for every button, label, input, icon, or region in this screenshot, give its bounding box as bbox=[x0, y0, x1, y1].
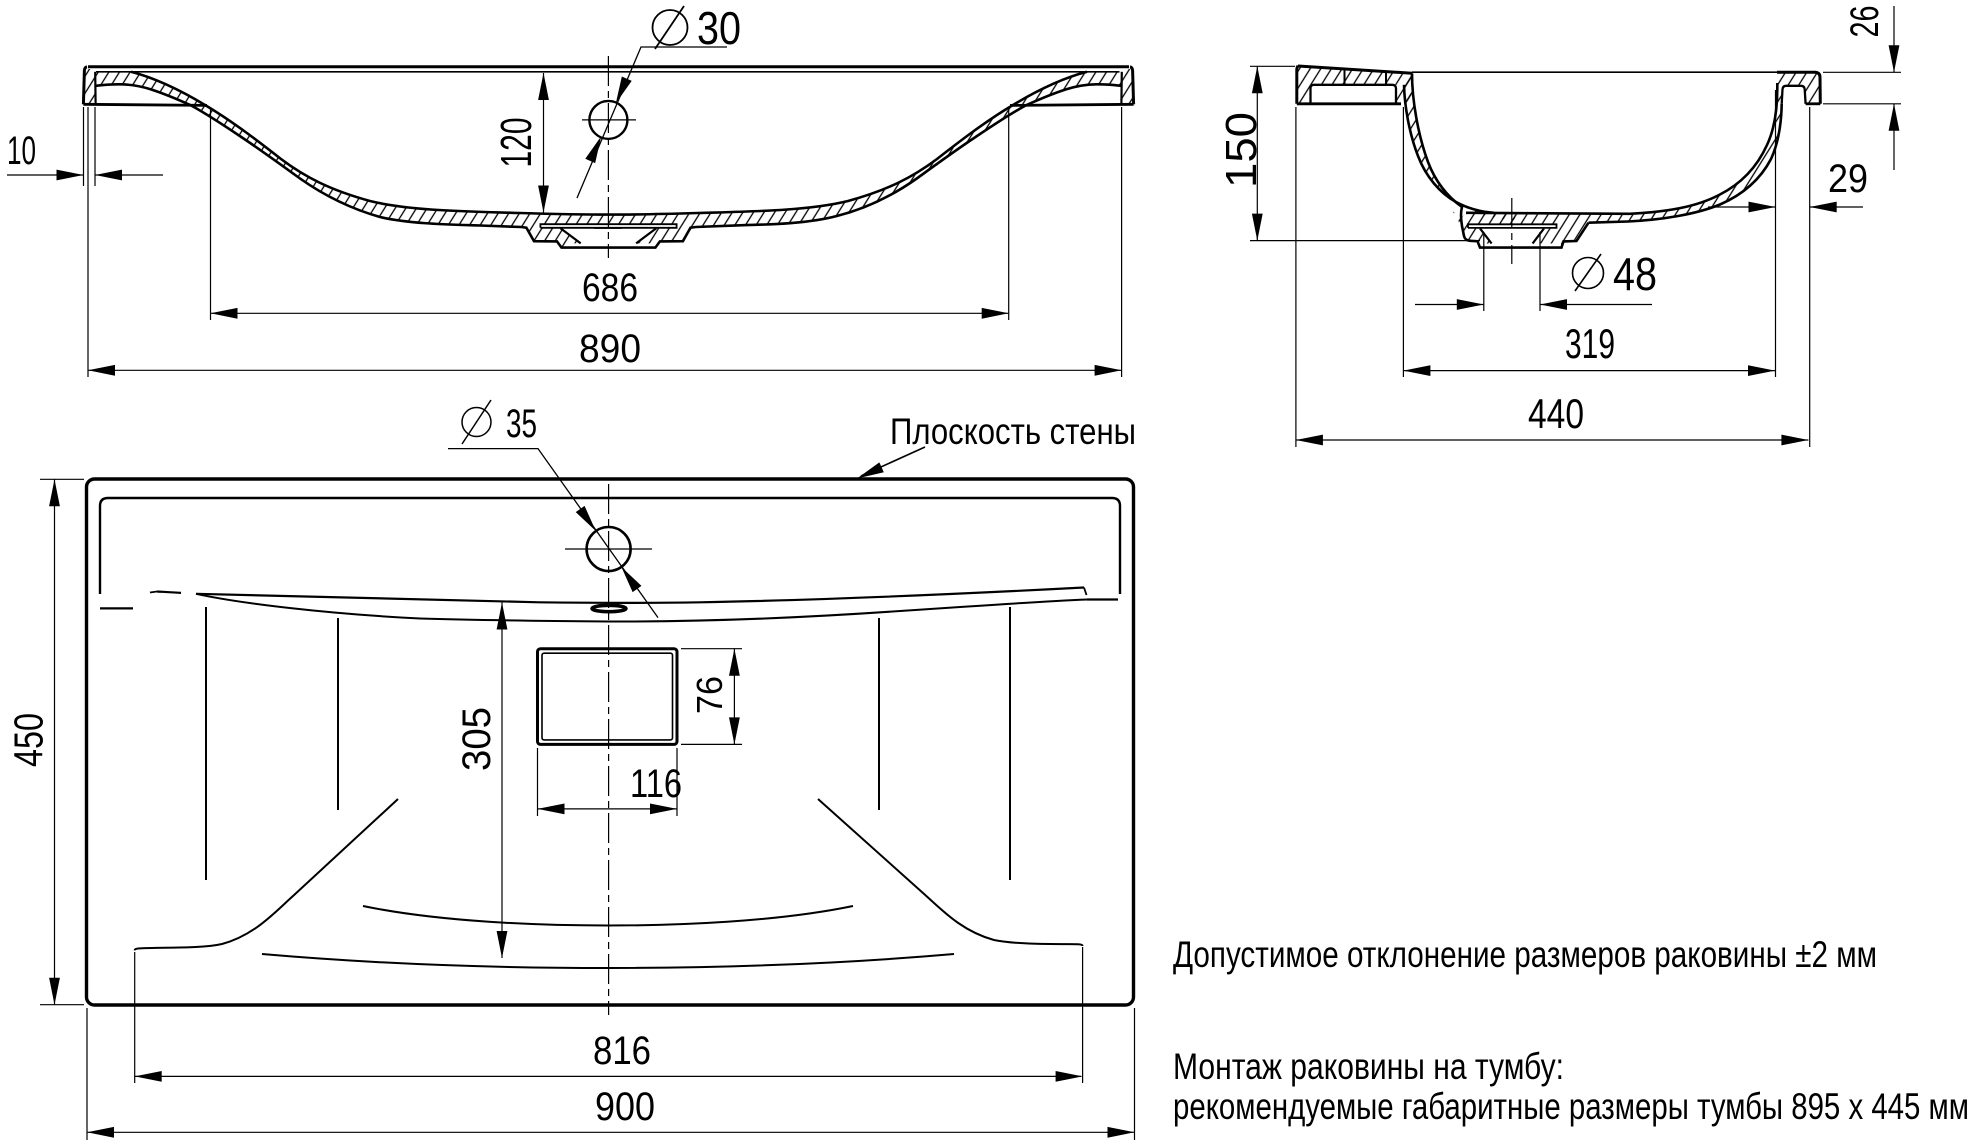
svg-text:150: 150 bbox=[1217, 112, 1266, 188]
svg-text:26: 26 bbox=[1843, 6, 1887, 38]
svg-text:890: 890 bbox=[579, 327, 641, 371]
svg-text:29: 29 bbox=[1828, 157, 1868, 201]
svg-text:120: 120 bbox=[492, 118, 541, 168]
svg-text:816: 816 bbox=[593, 1029, 651, 1073]
svg-text:319: 319 bbox=[1565, 320, 1615, 367]
svg-text:305: 305 bbox=[455, 707, 499, 771]
svg-text:48: 48 bbox=[1613, 248, 1657, 300]
svg-text:Допустимое отклонение размеров: Допустимое отклонение размеров раковины … bbox=[1173, 934, 1877, 975]
svg-text:116: 116 bbox=[630, 762, 682, 806]
svg-text:Монтаж раковины на тумбу:: Монтаж раковины на тумбу: bbox=[1173, 1046, 1564, 1087]
svg-text:686: 686 bbox=[582, 266, 638, 310]
svg-text:450: 450 bbox=[6, 713, 52, 767]
svg-text:рекомендуемые габаритные разме: рекомендуемые габаритные размеры тумбы 8… bbox=[1173, 1086, 1969, 1127]
svg-text:76: 76 bbox=[689, 676, 730, 714]
svg-text:Плоскость стены: Плоскость стены bbox=[890, 411, 1136, 452]
svg-text:900: 900 bbox=[595, 1085, 655, 1129]
svg-text:440: 440 bbox=[1528, 390, 1584, 437]
svg-text:35: 35 bbox=[506, 402, 537, 446]
svg-text:10: 10 bbox=[7, 129, 36, 173]
svg-text:30: 30 bbox=[697, 2, 741, 54]
